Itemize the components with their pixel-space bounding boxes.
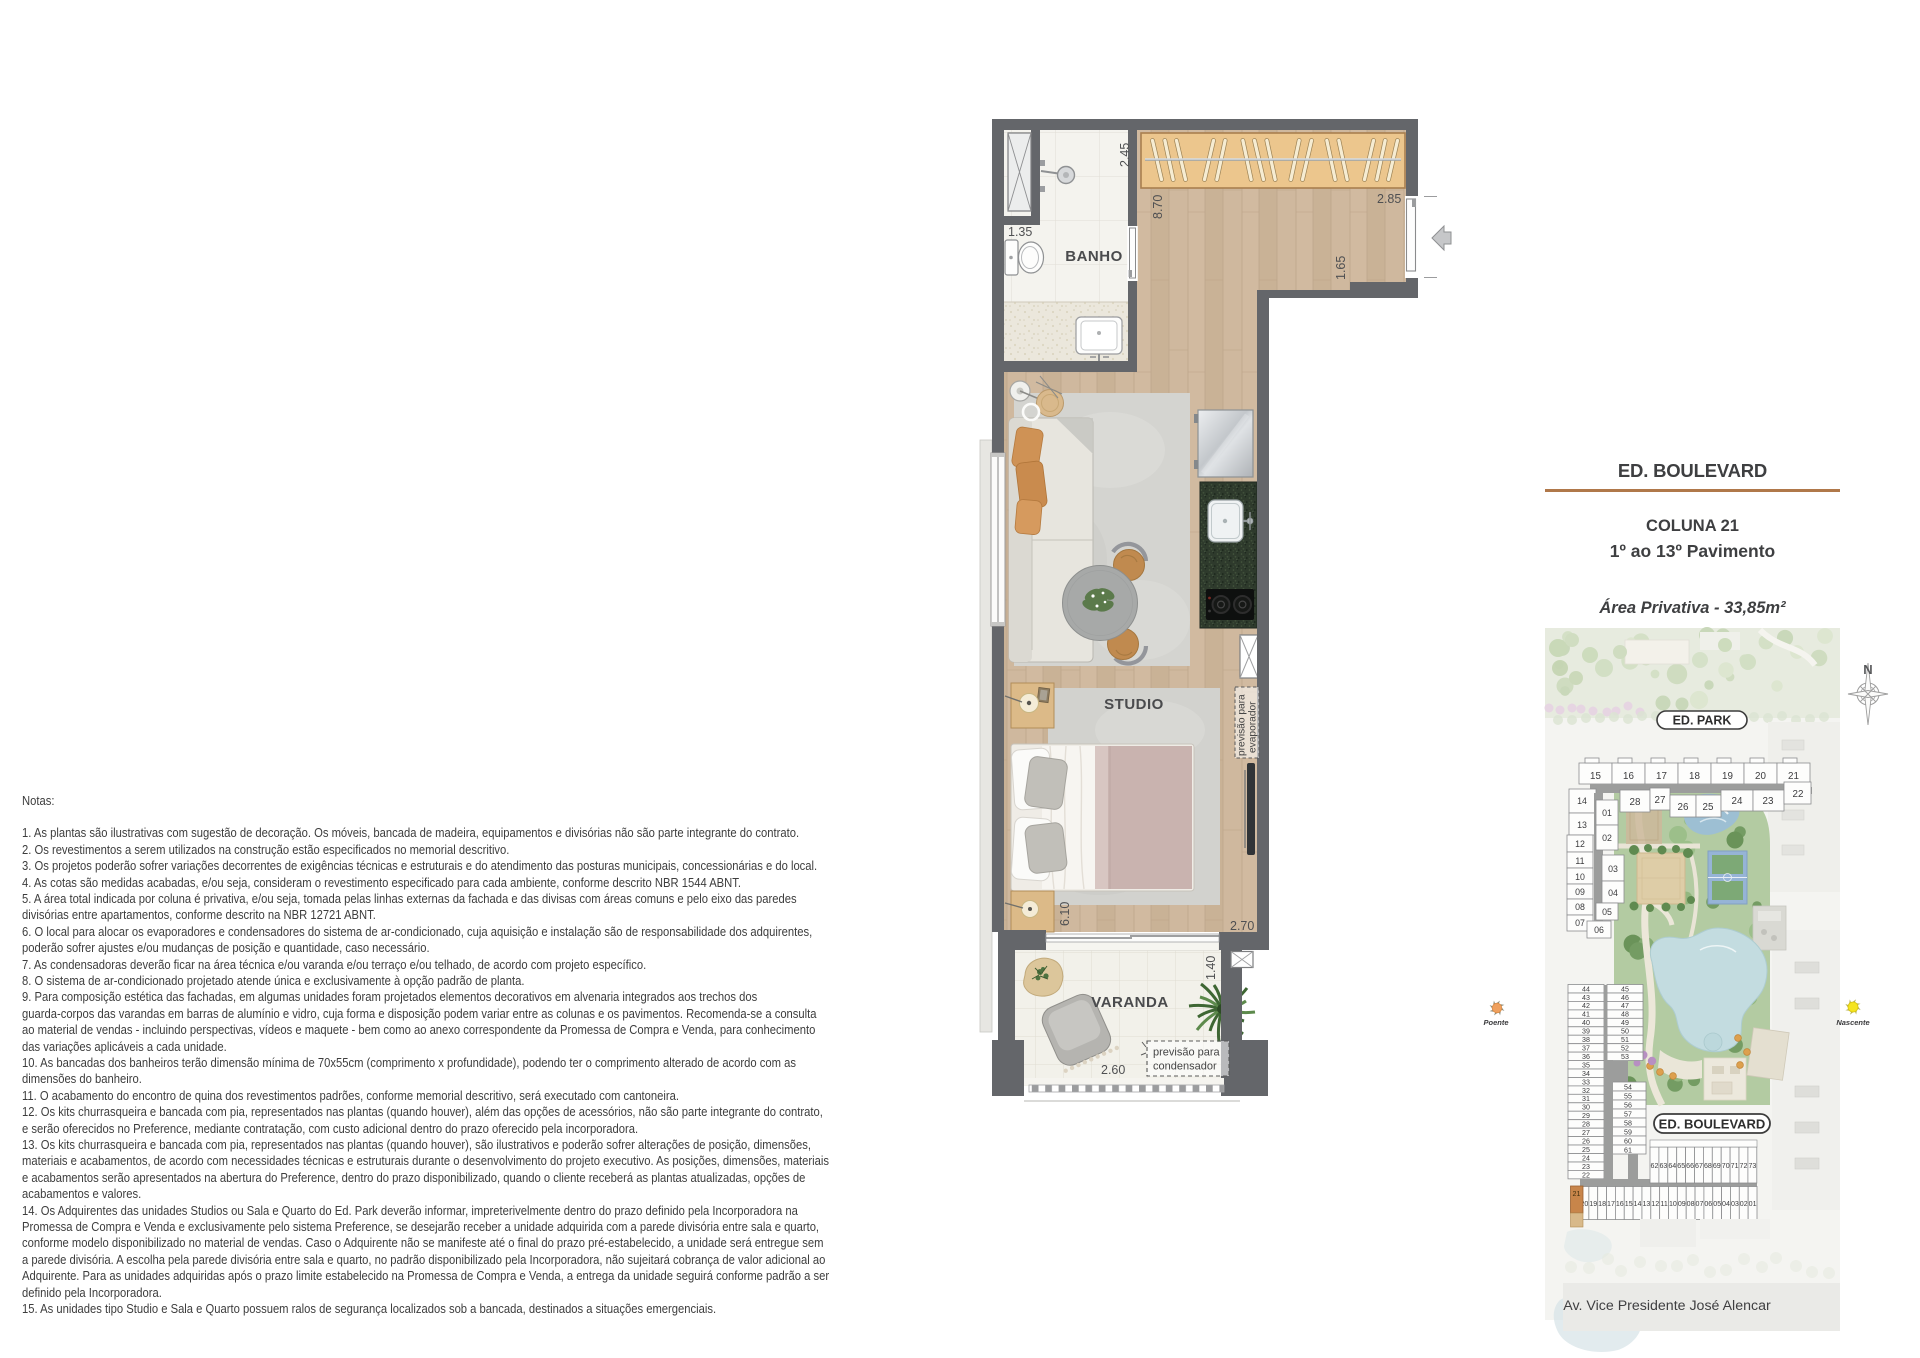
- svg-text:38: 38: [1582, 1036, 1590, 1044]
- svg-text:68: 68: [1704, 1162, 1712, 1170]
- svg-text:50: 50: [1621, 1028, 1629, 1036]
- svg-text:10: 10: [1669, 1200, 1677, 1208]
- svg-text:02: 02: [1740, 1200, 1748, 1208]
- svg-text:29: 29: [1582, 1112, 1590, 1120]
- svg-text:48: 48: [1621, 1011, 1629, 1019]
- svg-text:52: 52: [1621, 1045, 1629, 1053]
- svg-text:12: 12: [1651, 1200, 1659, 1208]
- svg-text:08: 08: [1687, 1200, 1695, 1208]
- svg-text:23: 23: [1582, 1163, 1590, 1171]
- svg-text:62: 62: [1651, 1162, 1659, 1170]
- svg-text:09: 09: [1678, 1200, 1686, 1208]
- svg-text:N: N: [1863, 662, 1872, 677]
- svg-text:27: 27: [1582, 1129, 1590, 1137]
- svg-text:64: 64: [1668, 1162, 1676, 1170]
- svg-text:2.45: 2.45: [1118, 143, 1132, 167]
- svg-text:07: 07: [1575, 918, 1585, 928]
- svg-text:32: 32: [1582, 1087, 1590, 1095]
- svg-text:17: 17: [1656, 771, 1667, 782]
- svg-text:30: 30: [1582, 1104, 1590, 1112]
- svg-text:Av. Vice Presidente José Alenc: Av. Vice Presidente José Alencar: [1563, 1298, 1771, 1314]
- svg-text:44: 44: [1582, 985, 1590, 993]
- svg-text:57: 57: [1624, 1110, 1632, 1118]
- svg-text:previsão para: previsão para: [1237, 694, 1248, 756]
- svg-text:25: 25: [1703, 802, 1714, 813]
- svg-text:13: 13: [1642, 1200, 1650, 1208]
- svg-text:58: 58: [1624, 1119, 1632, 1127]
- svg-text:28: 28: [1630, 797, 1641, 808]
- svg-text:28: 28: [1582, 1121, 1590, 1129]
- svg-text:04: 04: [1722, 1200, 1730, 1208]
- svg-text:12: 12: [1575, 839, 1585, 849]
- svg-text:40: 40: [1582, 1019, 1590, 1027]
- svg-text:65: 65: [1677, 1162, 1685, 1170]
- svg-text:67: 67: [1695, 1162, 1703, 1170]
- svg-text:27: 27: [1655, 795, 1666, 806]
- svg-text:61: 61: [1624, 1146, 1632, 1154]
- svg-text:53: 53: [1621, 1053, 1629, 1061]
- svg-text:22: 22: [1582, 1171, 1590, 1179]
- svg-text:03: 03: [1731, 1200, 1739, 1208]
- svg-text:06: 06: [1704, 1200, 1712, 1208]
- svg-text:04: 04: [1608, 888, 1618, 898]
- svg-text:6.10: 6.10: [1058, 902, 1072, 926]
- svg-text:37: 37: [1582, 1045, 1590, 1053]
- svg-text:34: 34: [1582, 1070, 1590, 1078]
- svg-text:21: 21: [1573, 1190, 1581, 1198]
- svg-text:08: 08: [1575, 902, 1585, 912]
- svg-text:26: 26: [1678, 802, 1689, 813]
- svg-text:Poente: Poente: [1483, 1018, 1508, 1027]
- svg-text:ED. PARK: ED. PARK: [1673, 714, 1732, 728]
- svg-text:11: 11: [1660, 1200, 1667, 1208]
- svg-text:69: 69: [1713, 1162, 1721, 1170]
- svg-text:46: 46: [1621, 994, 1629, 1002]
- svg-text:8.70: 8.70: [1151, 195, 1165, 219]
- svg-text:55: 55: [1624, 1092, 1632, 1100]
- svg-text:1.35: 1.35: [1008, 225, 1032, 239]
- svg-text:49: 49: [1621, 1019, 1629, 1027]
- svg-text:59: 59: [1624, 1128, 1632, 1136]
- svg-text:11: 11: [1575, 856, 1584, 866]
- svg-text:21: 21: [1788, 771, 1799, 782]
- svg-text:05: 05: [1602, 907, 1612, 917]
- svg-text:02: 02: [1602, 833, 1612, 843]
- svg-text:60: 60: [1624, 1137, 1632, 1145]
- svg-text:47: 47: [1621, 1002, 1629, 1010]
- svg-text:19: 19: [1589, 1200, 1597, 1208]
- svg-text:41: 41: [1582, 1011, 1590, 1019]
- svg-text:73: 73: [1748, 1162, 1756, 1170]
- svg-text:18: 18: [1598, 1200, 1606, 1208]
- svg-text:71: 71: [1731, 1162, 1739, 1170]
- svg-text:63: 63: [1659, 1162, 1667, 1170]
- svg-text:43: 43: [1582, 994, 1590, 1002]
- svg-text:07: 07: [1696, 1200, 1704, 1208]
- svg-text:66: 66: [1686, 1162, 1694, 1170]
- svg-text:2.60: 2.60: [1101, 1063, 1125, 1077]
- svg-text:1.40: 1.40: [1204, 956, 1218, 980]
- svg-text:10: 10: [1575, 872, 1585, 882]
- svg-text:condensador: condensador: [1153, 1061, 1217, 1073]
- svg-text:ED. BOULEVARD: ED. BOULEVARD: [1659, 1117, 1766, 1132]
- svg-text:19: 19: [1722, 771, 1733, 782]
- svg-text:45: 45: [1621, 985, 1629, 993]
- svg-text:13: 13: [1577, 820, 1587, 830]
- svg-text:26: 26: [1582, 1138, 1590, 1146]
- svg-text:01: 01: [1602, 808, 1612, 818]
- svg-text:25: 25: [1582, 1146, 1590, 1154]
- svg-text:70: 70: [1722, 1162, 1730, 1170]
- svg-text:15: 15: [1590, 771, 1601, 782]
- svg-text:evaporador: evaporador: [1248, 701, 1259, 753]
- svg-text:24: 24: [1582, 1154, 1590, 1162]
- svg-text:22: 22: [1793, 789, 1804, 800]
- svg-text:09: 09: [1575, 887, 1585, 897]
- svg-text:VARANDA: VARANDA: [1091, 994, 1168, 1011]
- svg-text:23: 23: [1763, 796, 1774, 807]
- svg-text:20: 20: [1755, 771, 1766, 782]
- svg-text:36: 36: [1582, 1053, 1590, 1061]
- svg-text:72: 72: [1740, 1162, 1748, 1170]
- svg-text:01: 01: [1749, 1200, 1757, 1208]
- svg-text:05: 05: [1713, 1200, 1721, 1208]
- svg-text:33: 33: [1582, 1078, 1590, 1086]
- svg-text:1.65: 1.65: [1334, 256, 1348, 280]
- svg-text:24: 24: [1732, 796, 1743, 807]
- svg-text:39: 39: [1582, 1028, 1590, 1036]
- svg-text:51: 51: [1621, 1036, 1629, 1044]
- svg-text:15: 15: [1625, 1200, 1633, 1208]
- svg-text:2.85: 2.85: [1377, 192, 1401, 206]
- svg-text:42: 42: [1582, 1002, 1590, 1010]
- svg-text:56: 56: [1624, 1101, 1632, 1109]
- svg-text:previsão para: previsão para: [1153, 1047, 1221, 1059]
- svg-text:54: 54: [1624, 1083, 1632, 1091]
- svg-text:35: 35: [1582, 1061, 1590, 1069]
- svg-text:17: 17: [1607, 1200, 1615, 1208]
- svg-text:14: 14: [1577, 796, 1587, 806]
- svg-text:BANHO: BANHO: [1065, 248, 1123, 265]
- svg-text:31: 31: [1582, 1095, 1590, 1103]
- svg-text:STUDIO: STUDIO: [1104, 696, 1164, 713]
- svg-text:2.70: 2.70: [1230, 919, 1254, 933]
- svg-text:Nascente: Nascente: [1836, 1018, 1869, 1027]
- svg-text:16: 16: [1616, 1200, 1624, 1208]
- svg-text:16: 16: [1623, 771, 1634, 782]
- svg-text:14: 14: [1634, 1200, 1642, 1208]
- svg-text:06: 06: [1594, 925, 1604, 935]
- svg-text:18: 18: [1689, 771, 1700, 782]
- svg-text:03: 03: [1608, 864, 1618, 874]
